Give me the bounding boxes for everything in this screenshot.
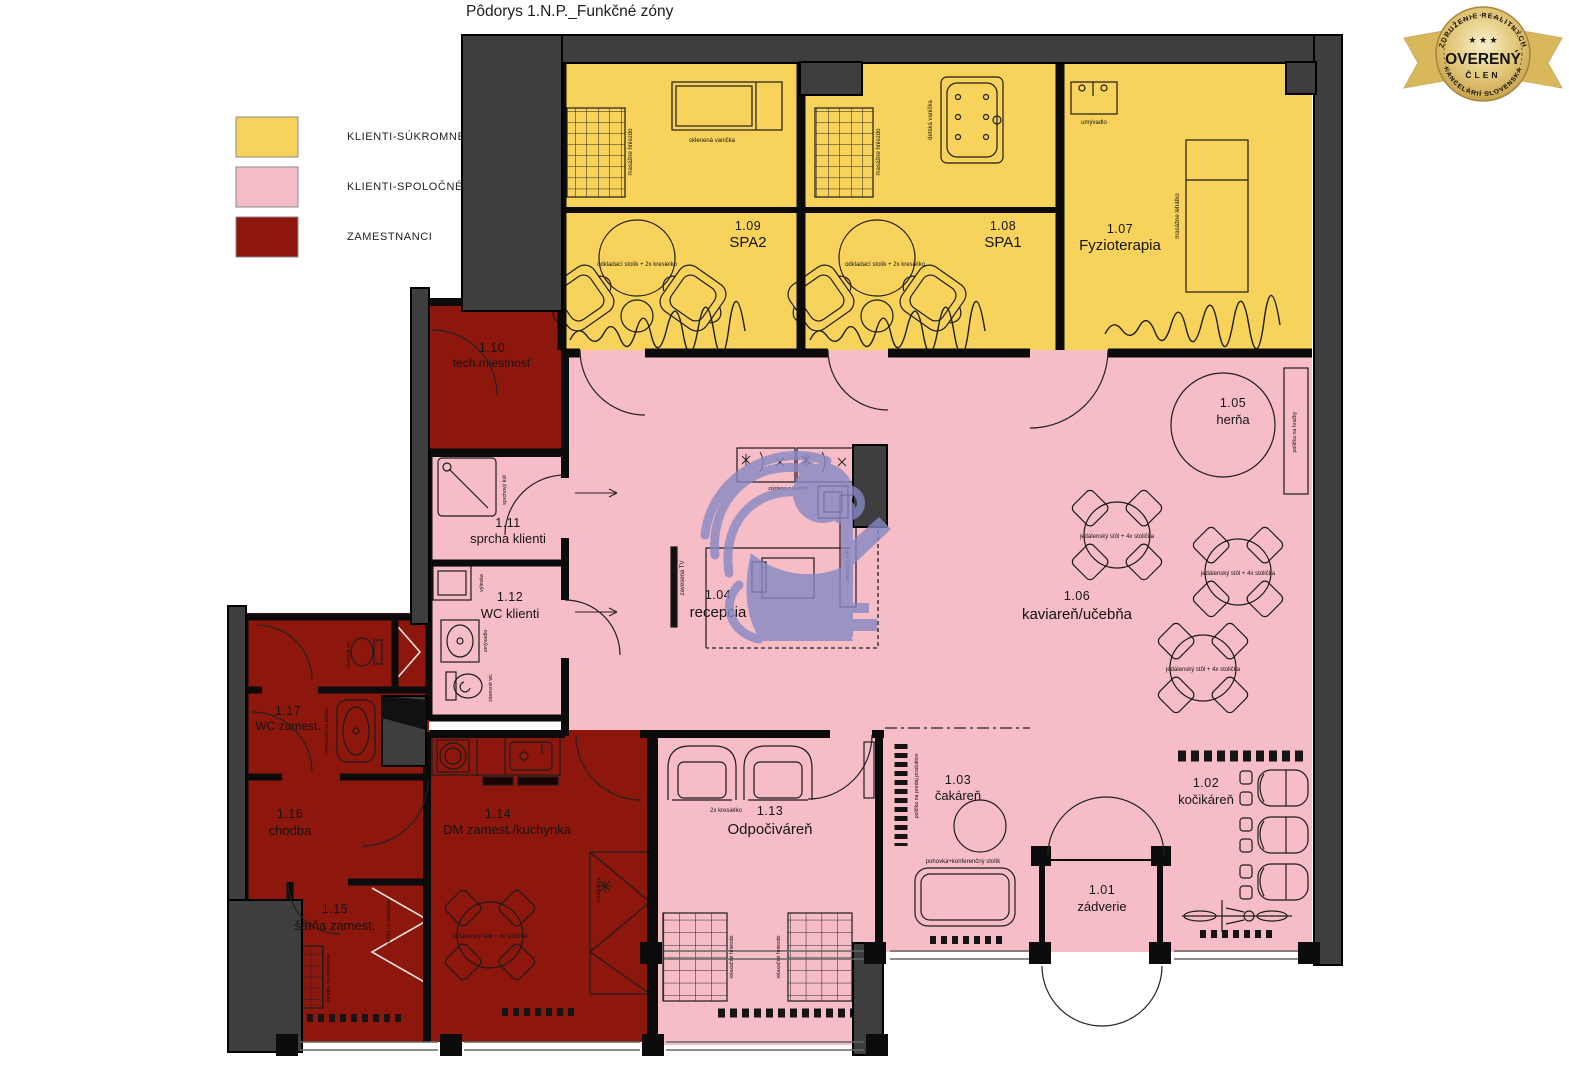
room-name: Fyzioterapia [1079,237,1161,254]
room-name: herňa [1216,412,1250,427]
furniture-label: jedálenský stôl + 4x stolička [1200,571,1276,577]
furniture-label: sklenená vanička [689,138,736,144]
room-id: 1.09 [735,219,761,233]
room-id: 1.17 [275,704,301,718]
room-name: DM zamest./kuchynka [443,822,572,837]
room-id: 1.06 [1064,589,1090,603]
furniture-label: skrinka na oblečenie [326,954,332,1002]
room-id: 1.11 [495,516,520,530]
room-id: 1.10 [479,341,505,355]
room-id: 1.16 [277,807,303,821]
furniture-label: polička na hračky [1292,411,1298,452]
room-name: kočikáreň [1178,792,1234,807]
badge-stars: ★ ★ ★ [1468,35,1497,45]
badge-main-text: OVERENÝ [1445,50,1521,68]
room-name: zádverie [1077,899,1126,914]
room-name: WC klienti [481,606,540,621]
room-id: 1.03 [945,773,971,787]
badge-graphic: ZDRUŽENIE REALITNÝCH KANCELÁRIÍ SLOVENSK… [1398,2,1568,110]
room-name: tech.miestnosť [453,356,532,370]
room-sprcha-wc-klienti-area [430,450,565,718]
room-id: 1.07 [1107,222,1133,236]
room-name: kaviareň/učebňa [1022,606,1133,623]
furniture-label: sprchový kút [502,475,508,505]
furniture-label: jedálenský stôl + 4x stolička [452,934,528,940]
furniture-label: detská vanička [928,100,934,140]
furniture-label: umývadlo [483,630,489,653]
floorplan-page: Pôdorys 1.N.P._Funkčné zóny KLIENTI-SÚKR… [0,0,1569,1080]
room-name: WC zamest. [255,719,320,733]
furniture-label: chladnička [596,877,602,902]
furniture-label: zavesená TV [680,561,686,596]
room-name: Odpočiváreň [727,821,812,838]
furniture-label: odkladací stolík + 2x kresielko [845,262,926,268]
furniture-label: relaxačné hniezdo [776,935,782,978]
furniture-label: odkladací stolík + 2x kresielko [597,262,678,268]
furniture-label: relaxačné hniezdo [729,935,735,978]
room-id: 1.08 [990,219,1016,233]
furniture-label: pohovka+konferenčný stolík [926,859,1002,865]
furniture-label: masážne lehátko [1175,193,1181,239]
room-name: šatňa zamest. [295,918,376,933]
room-name: SPA2 [729,234,766,251]
room-id: 1.12 [497,590,523,604]
room-id: 1.01 [1089,883,1115,897]
room-tech-area [420,298,565,455]
furniture-label: závesné wc [488,674,494,702]
furniture-label: výlevka [479,574,485,592]
furniture-label: masážne hniezdo [876,128,882,176]
furniture-label: skriňa na oblečenie [386,899,392,945]
room-name: SPA1 [984,234,1021,251]
furniture-label: umývadlo na doske [324,708,330,754]
room-id: 1.02 [1193,776,1219,790]
room-id: 1.13 [757,804,783,818]
furniture-label: 2x kresielko [710,808,742,814]
furniture-label: polička na predaj produktov [914,753,920,818]
furniture-label: jedálenský stôl + 4x stolička [1165,667,1241,673]
furniture-label: umývadlo [1081,120,1107,126]
furniture-label: jedálenský stôl + 4x stolička [1079,534,1155,540]
room-name: recepcia [690,604,747,621]
floorplan-drawing: 1.09 SPA2 1.08 SPA1 1.07 Fyzioterapia 1.… [0,0,1569,1080]
room-id: 1.14 [485,807,511,821]
furniture-label: závesné wc [346,641,352,669]
room-name: čakáreň [935,788,981,803]
badge-sub-text: ČLEN [1465,69,1500,80]
verified-member-badge: ZDRUŽENIE REALITNÝCH KANCELÁRIÍ SLOVENSK… [1398,2,1568,115]
room-name: sprcha klienti [470,531,546,546]
room-id: 1.15 [322,902,348,916]
room-id: 1.05 [1220,396,1246,410]
furniture-label: masážne hniezdo [628,128,634,176]
room-name: chodba [269,823,312,838]
